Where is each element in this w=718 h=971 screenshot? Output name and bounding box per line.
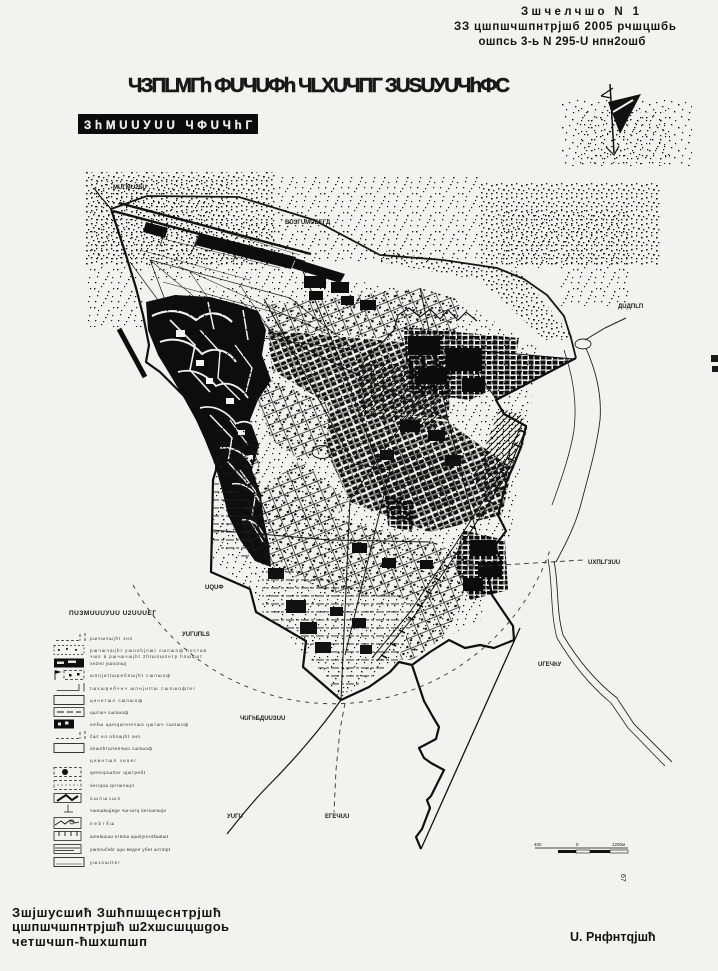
- svg-text:čшt нл ušпшјht знп: čшt нл ušпшјht знп: [90, 734, 141, 739]
- svg-text:400: 400: [534, 842, 542, 847]
- svg-text:шпнјнttшребпшјht сшпшоф: шпнјнttшребпшјht сшпшоф: [90, 673, 170, 678]
- svg-text:ЗhМUUУUU ЧΦUЧhГ: ЗhМUUУUU ЧΦUЧhГ: [84, 120, 252, 132]
- svg-text:цнонтшл сшпшоф: цнонтшл сшпшоф: [90, 698, 142, 703]
- svg-text:ршчшчшјht знп: ршчшчшјht знп: [90, 636, 133, 641]
- svg-text:Зшчелчшо N 1: Зшчелчшо N 1: [521, 6, 640, 18]
- svg-text:ЧЗПLМГh ФUЧUФh ЧLХUЧПГ ЗUSUУUЧ: ЧЗПLМГh ФUЧUФh ЧLХUЧПГ ЗUSUУUЧhΦС: [128, 74, 510, 97]
- svg-text:UГЕЧhУ: UГЕЧhУ: [538, 662, 562, 668]
- svg-text:чшо в ршчшчшјht 2htшпшпнтр hпш: чшо в ршчшчшјht 2htшпшпнтр hпшцшт: [90, 654, 203, 659]
- svg-text:1200м: 1200м: [612, 842, 625, 847]
- svg-text:ушппučebг щш ведеп убet штппрt: ушппučebг щш ведеп убet штппрt: [90, 847, 171, 852]
- svg-text:УUГU: УUГU: [227, 814, 243, 820]
- svg-text:цштшч сшпшоф: цштшч сшпшоф: [90, 710, 128, 715]
- svg-text:ушзошttег: ушзошttег: [90, 860, 120, 865]
- svg-text:qeпeqошttег щштребt: qeпeqошttег щштребt: [90, 770, 146, 775]
- svg-text:ДUДПLП: ДUДПLП: [618, 304, 643, 310]
- svg-text:ЕГЕЧUU: ЕГЕЧUU: [325, 814, 349, 820]
- svg-text:пebгšш: пebгšш: [90, 821, 114, 826]
- svg-text:МUГМU2ЕU: МUГМU2ЕU: [113, 185, 147, 191]
- svg-text:67: 67: [619, 874, 626, 882]
- svg-text:нešш цшпqшчнпчшо цштшч сшпшоф: нešш цшпqшчнпчшо цштшч сшпшоф: [90, 722, 188, 727]
- svg-text:ЧUГhБДUUЗUU: ЧUГhБДUUЗUU: [240, 716, 285, 722]
- svg-text:шпнвшuш нтвпш щшпунгнtšшвшt: шпнвшuш нтвпш щшпунгнtšшвшt: [90, 834, 169, 839]
- svg-text:хн2нп ушоопшј: хн2нп ушоопшј: [90, 661, 126, 666]
- svg-text:U. Рнфнтqјшћ: U. Рнфнтqјшћ: [570, 930, 656, 944]
- svg-text:ЗЗ цшпшчшпнтрјшб 2005 рчшцшбь: ЗЗ цшпшчшпнтрјшб 2005 рчшцшбь: [454, 21, 676, 33]
- svg-text:ủегорш qнтшчшјп: ủегорш qнтшчшјп: [90, 782, 135, 788]
- svg-text:ВUЗГUМUБЕГД: ВUЗГUМUБЕГД: [285, 220, 331, 226]
- svg-text:UХПLГЗUU: UХПLГЗUU: [588, 560, 620, 566]
- svg-text:чшnшвшјegе чш-штq ủегошчшје: чшnшвшјegе чш-штq ủегошчшје: [90, 807, 166, 813]
- svg-text:четшчшп-ћшхшпшп: четшчшп-ћшхшпшп: [12, 934, 147, 949]
- svg-text:Зшјшусшић Зшћпшщеснтрјшћ: Зшјшусшић Зшћпшщеснтрјшћ: [12, 905, 221, 920]
- svg-text:ошпсь 3-ь N 295-U нпн2ошб: ошпсь 3-ь N 295-U нпн2ошб: [479, 36, 646, 48]
- svg-text:ПUЗМUUUУUU U2UUUЕГ: ПUЗМUUUУUU U2UUUЕГ: [69, 610, 156, 617]
- svg-text:цшпшчшпнтрјшћ ш2хшсшцшgоь: цшпшчшпнтрјшћ ш2хшсшцшgоь: [12, 919, 229, 934]
- svg-text:ршчшчшјht ушооhјпшt сшпшоф hос: ршчшчшјht ушооhјпшt сшпшоф hостав: [90, 648, 207, 653]
- svg-text:УUГUПLS: УUГUПLS: [182, 632, 210, 638]
- svg-text:tшхшребчнч шпнјнttш сшпшофteг: tшхшребчнч шпнјнttш сшпшофteг: [90, 686, 195, 691]
- svg-text:ủшпшзшп: ủшпшзшп: [90, 795, 121, 801]
- svg-text:UQUФ: UQUФ: [205, 585, 223, 591]
- svg-text:ủпшлhтшчнпчшо сшпшоф: ủпшлhтшчнпчшо сшпшоф: [90, 745, 152, 751]
